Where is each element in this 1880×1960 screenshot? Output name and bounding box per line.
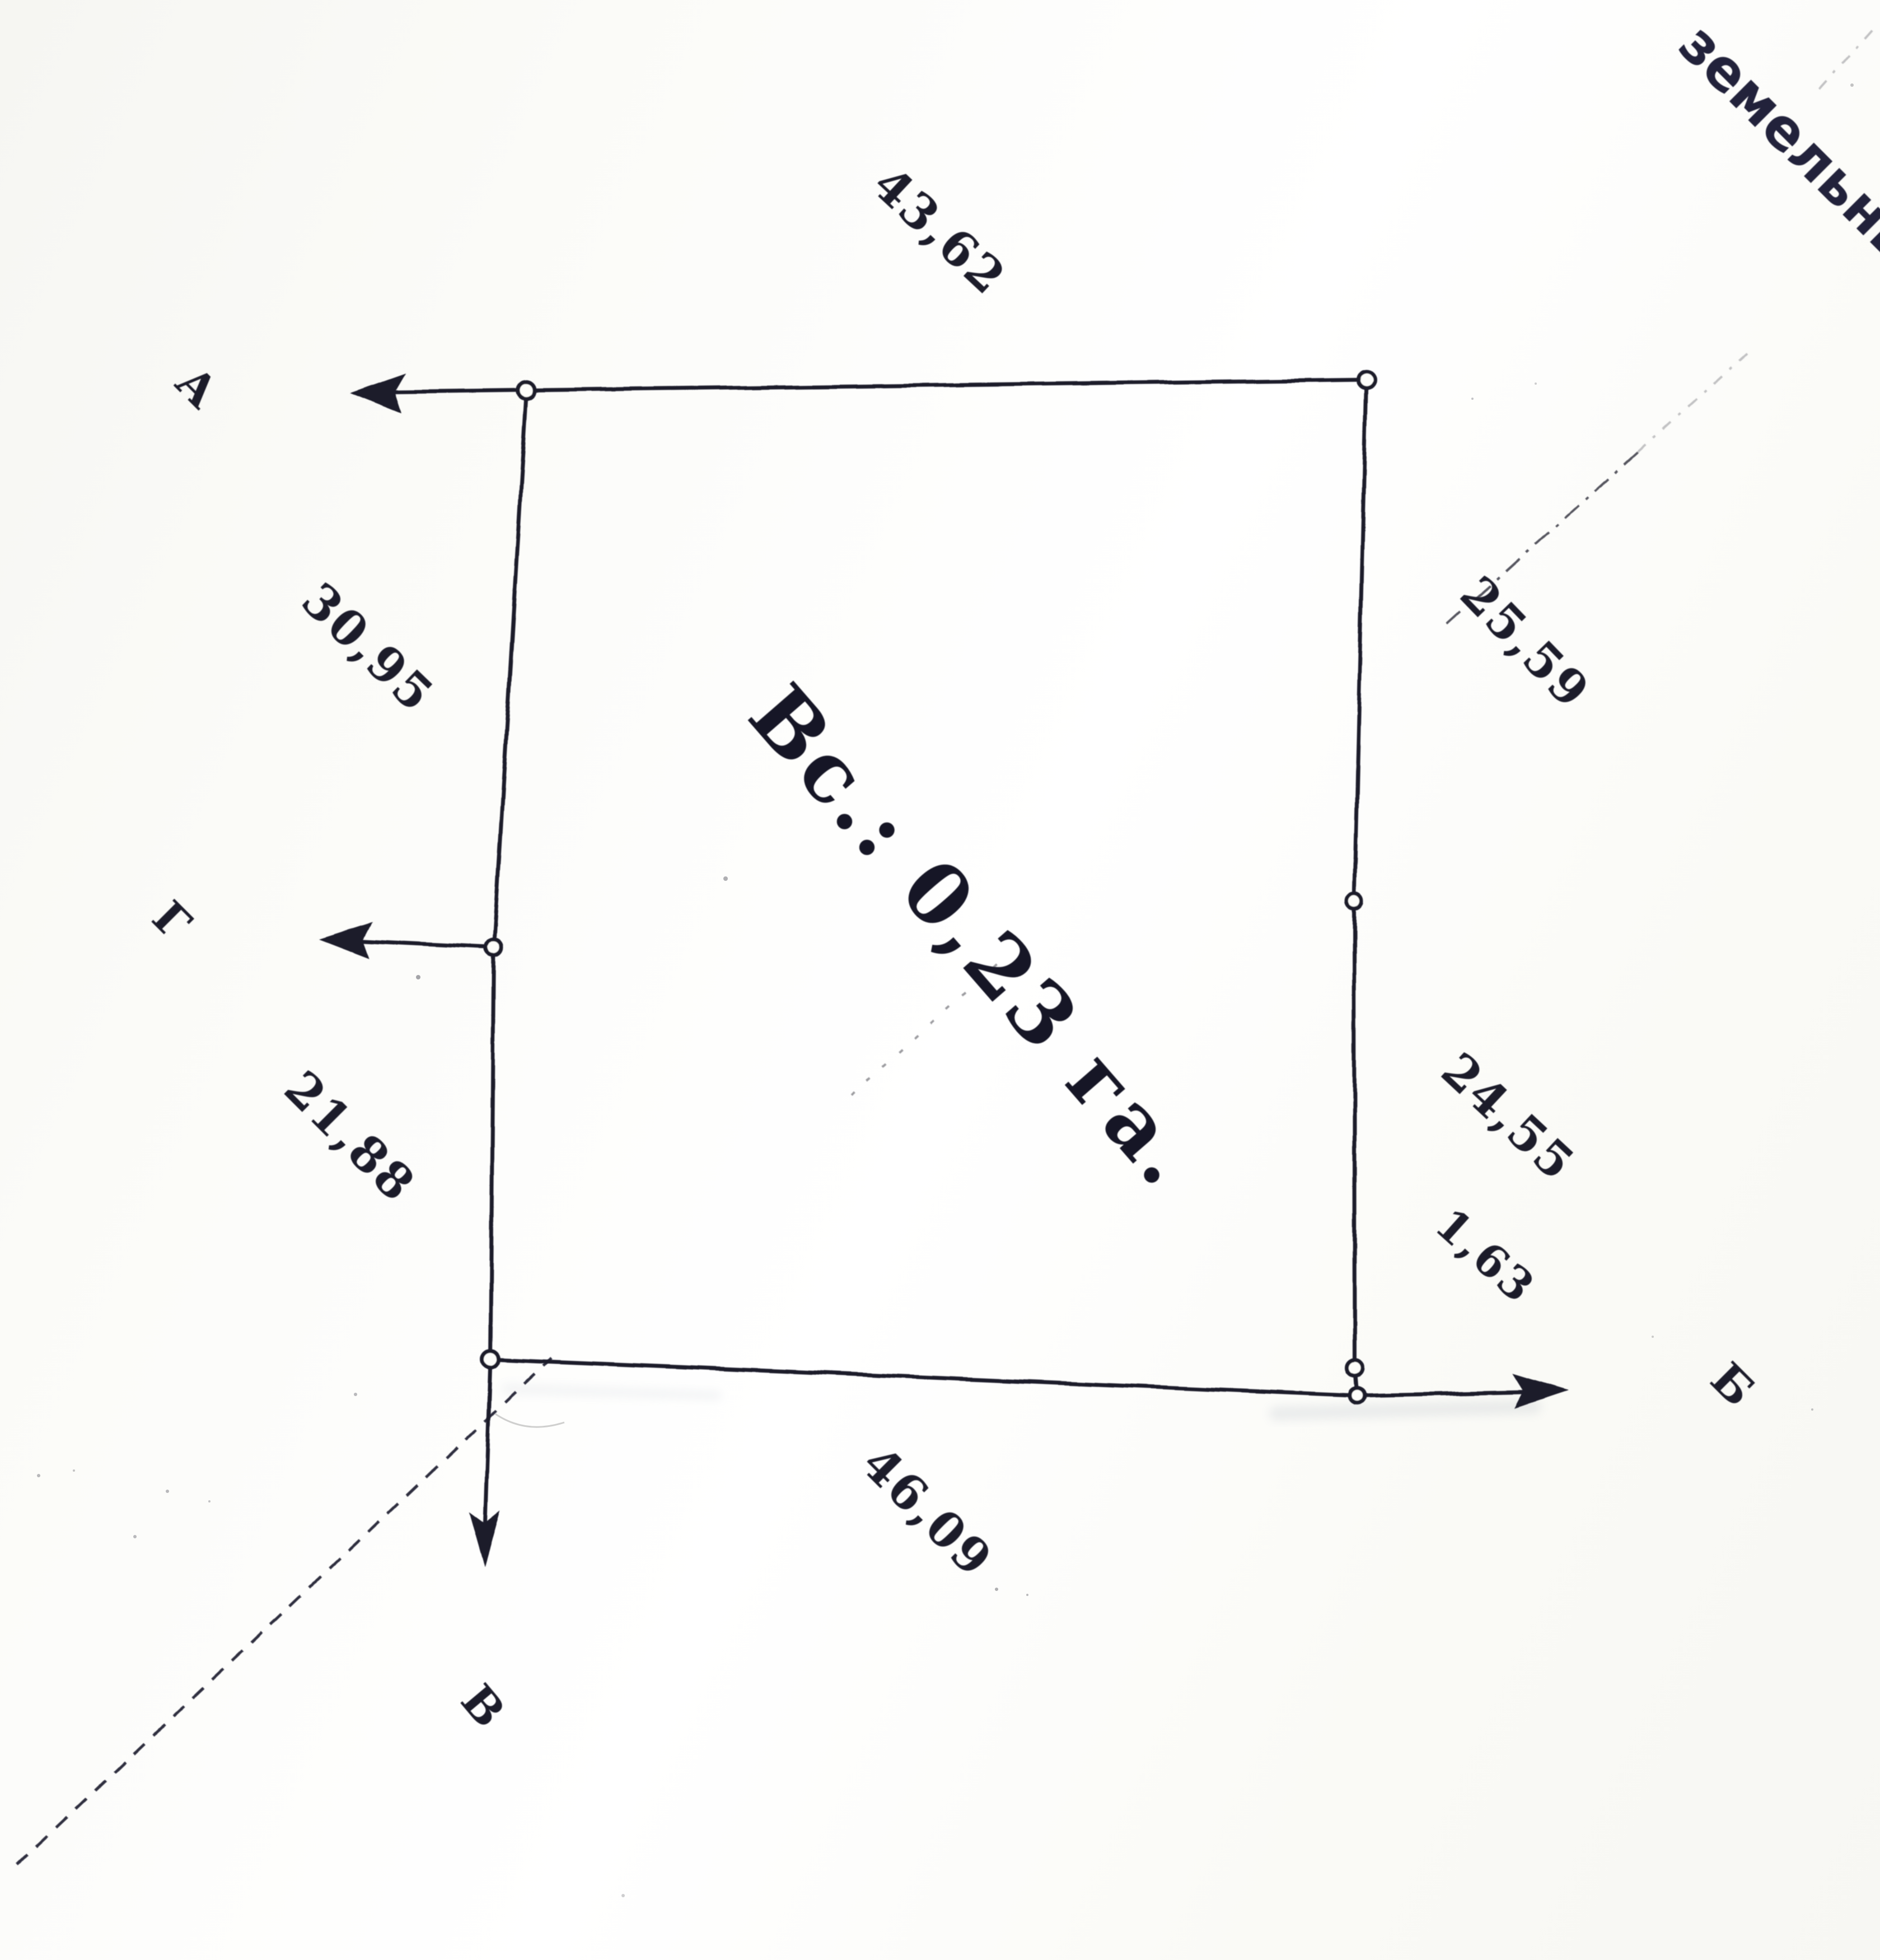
scan-smear-bottom-right xyxy=(1276,1407,1534,1413)
boundary-edge-left xyxy=(490,390,527,1359)
scan-artifacts xyxy=(37,83,1854,1897)
corner-label-g: Г xyxy=(142,890,202,950)
vertex-marker-bottom-left xyxy=(482,1351,499,1368)
corner-label-v: В xyxy=(451,1674,515,1737)
boundary-edge-right xyxy=(1354,380,1366,1368)
measurement-right-upper: 25,59 xyxy=(1449,566,1601,720)
land-survey-sketch: 43,62 30,95 21,88 25,59 24,55 1,63 46,09… xyxy=(0,0,1880,1960)
vertex-marker-bottom-right-lower xyxy=(1350,1388,1364,1403)
boundary-edge-top xyxy=(527,380,1366,390)
corner-label-a: А xyxy=(166,356,229,419)
cadastral-dashdot-line-northeast-faint xyxy=(1638,348,1752,452)
vertex-marker-right-mid xyxy=(1346,894,1362,909)
vertex-marker-left-mid xyxy=(486,940,502,955)
measurement-left-upper: 30,95 xyxy=(291,572,445,724)
scan-smear-bottom-left xyxy=(507,1389,717,1396)
corner-label-b: Б xyxy=(1701,1352,1765,1417)
measurement-top: 43,62 xyxy=(862,156,1017,306)
pencil-stroke xyxy=(495,1414,564,1427)
direction-arrow-v xyxy=(470,1359,499,1565)
vertex-marker-bottom-right-upper xyxy=(1347,1360,1363,1376)
direction-arrow-g xyxy=(321,923,494,958)
cadastral-dashed-line-southwest xyxy=(17,1358,551,1865)
stamp-text-fragment: земельны xyxy=(1667,11,1880,284)
vertex-marker-top-right xyxy=(1358,371,1374,388)
area-label: Вс.: 0,23 га. xyxy=(731,666,1218,1207)
measurement-right-lower: 24,55 xyxy=(1430,1042,1586,1192)
scan-specks xyxy=(37,83,1854,1897)
measurement-left-lower: 21,88 xyxy=(273,1060,426,1213)
vertex-marker-top-left xyxy=(518,382,535,399)
measurement-right-offset: 1,63 xyxy=(1425,1198,1545,1313)
measurement-bottom: 46,09 xyxy=(850,1435,1003,1588)
direction-arrow-a xyxy=(352,374,527,412)
labels: 43,62 30,95 21,88 25,59 24,55 1,63 46,09… xyxy=(142,11,1880,1737)
cadastral-dash-corner xyxy=(1820,27,1876,90)
